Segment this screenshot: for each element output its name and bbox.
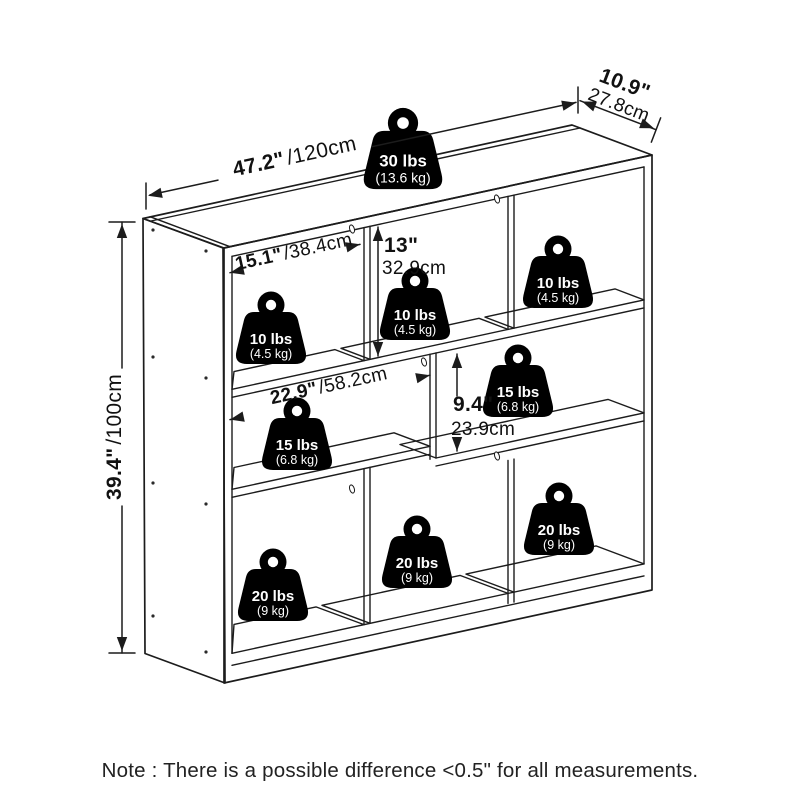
cabinet-left-panel — [143, 219, 225, 684]
height-dimension-label: 39.4"/100cm — [103, 374, 126, 500]
weight-lbs: 10 lbs — [537, 275, 580, 292]
dimension-cubby-width: 15.1"/38.4cm — [229, 229, 361, 278]
middle-cubby-width-label: 22.9"/58.2cm — [268, 363, 389, 409]
dimension-width: 47.2"/120cm — [146, 87, 578, 209]
weight-kg: (4.5 kg) — [250, 347, 292, 361]
weight-kg: (4.5 kg) — [537, 291, 579, 305]
cubby-width-label: 15.1"/38.4cm — [233, 229, 354, 275]
weight-kg: (9 kg) — [401, 571, 433, 585]
weight-badge-top-left: 10 lbs (4.5 kg) — [236, 292, 306, 365]
width-dimension-label: 47.2"/120cm — [231, 132, 359, 181]
weight-badge-bottom-middle: 20 lbs (9 kg) — [382, 516, 452, 589]
weight-lbs: 15 lbs — [497, 384, 540, 401]
weight-lbs: 10 lbs — [394, 307, 437, 324]
weight-kg: (13.6 kg) — [375, 169, 430, 185]
weight-kg: (4.5 kg) — [394, 323, 436, 337]
weight-kg: (6.8 kg) — [497, 400, 539, 414]
bookcase-drawing — [143, 125, 652, 683]
weight-badge-middle-right: 15 lbs (6.8 kg) — [483, 345, 553, 418]
weight-lbs: 15 lbs — [276, 437, 319, 454]
dimension-height: 39.4"/100cm — [103, 222, 135, 653]
weight-lbs: 20 lbs — [538, 522, 581, 539]
weight-lbs: 20 lbs — [396, 555, 439, 572]
weight-kg: (9 kg) — [543, 538, 575, 552]
measurement-note: Note : There is a possible difference <0… — [102, 759, 699, 782]
weight-lbs: 30 lbs — [379, 152, 427, 171]
weight-badges: 30 lbs (13.6 kg) 10 lbs (4.5 kg) 10 lbs … — [236, 108, 594, 621]
middle-right-height-inches: 9.4" — [453, 393, 493, 416]
weight-badge-bottom-left: 20 lbs (9 kg) — [238, 549, 308, 622]
top-row-height-cm: 32.9cm — [382, 258, 446, 279]
weight-badge-bottom-right: 20 lbs (9 kg) — [524, 483, 594, 556]
dimension-middle-cubby-width: 22.9"/58.2cm — [229, 363, 431, 425]
dimension-depth: 10.9" 27.8cm — [580, 63, 661, 142]
weight-lbs: 20 lbs — [252, 588, 295, 605]
top-row-height-inches: 13" — [384, 234, 418, 257]
weight-kg: (9 kg) — [257, 604, 289, 618]
weight-lbs: 10 lbs — [250, 331, 293, 348]
weight-badge-top-right: 10 lbs (4.5 kg) — [523, 236, 593, 309]
weight-kg: (6.8 kg) — [276, 453, 318, 467]
middle-right-height-cm: 23.9cm — [451, 419, 515, 440]
furniture-dimension-diagram: 30 lbs (13.6 kg) 10 lbs (4.5 kg) 10 lbs … — [0, 0, 800, 800]
weight-badge-top-surface: 30 lbs (13.6 kg) — [364, 108, 443, 189]
